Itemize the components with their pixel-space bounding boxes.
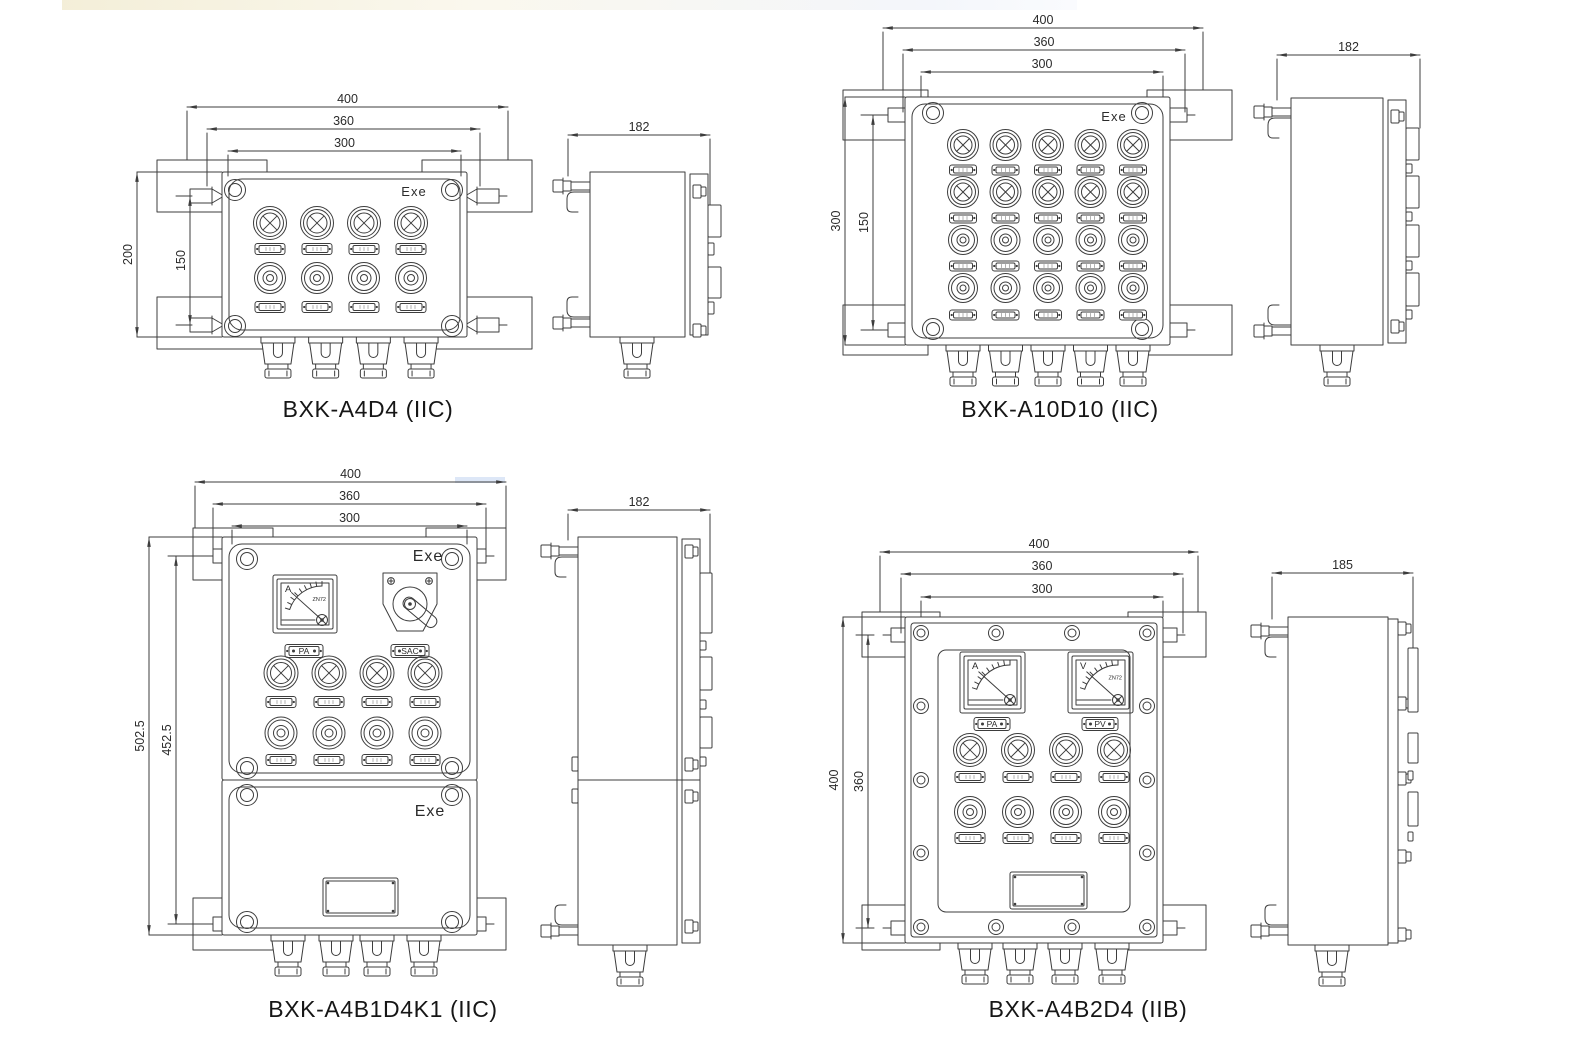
dim-label: 300 (1032, 57, 1053, 71)
dimension-horizontal: 360 (901, 559, 1183, 576)
dimension-horizontal: 185 (1272, 558, 1413, 575)
drawing-bxk-a10d10: Exe400360300300150182 (829, 13, 1420, 386)
dim-label: 150 (857, 212, 871, 233)
cable-gland (1031, 345, 1065, 386)
dim-label: 360 (1032, 559, 1053, 573)
label-plate (1077, 310, 1104, 320)
label-plate (396, 302, 426, 313)
datasheet-canvas: Exe400360300200150182Exe4003603003001501… (0, 0, 1593, 1050)
cable-gland (1315, 945, 1349, 986)
drawing-bxk-a4b1d4k1: ExeExeAZN72PASAC400360300502.5452.5182 (133, 467, 712, 986)
label-plate (1035, 213, 1062, 223)
dimension-horizontal: 182 (1277, 40, 1420, 57)
dim-label: V (1080, 661, 1087, 672)
drawing-title-bxk-a10d10: BXK-A10D10 (IIC) (961, 396, 1159, 423)
ammeter: AZN72 (273, 575, 337, 633)
side-view: 182 (541, 495, 712, 986)
legend-plate: PV (1082, 718, 1118, 731)
dim-label: 360 (1034, 35, 1055, 49)
label-plate (362, 755, 392, 766)
legend-plate: PA (285, 645, 323, 658)
mounting-bracket-side (553, 178, 590, 212)
cable-gland (1116, 345, 1150, 386)
drawing-bxk-a4b2d4: AVZN72PAPV400360300400360185 (827, 537, 1418, 986)
dimension-horizontal: 360 (903, 35, 1185, 52)
label-plate (950, 213, 977, 223)
label-plate (1003, 833, 1033, 844)
label-plate (992, 310, 1019, 320)
dim-label: 360 (852, 771, 866, 792)
label-plate (349, 302, 379, 313)
label-plate (349, 244, 379, 255)
dimension-horizontal: 400 (883, 13, 1203, 30)
mounting-bracket-side (1251, 905, 1288, 939)
mounting-bracket-side (541, 543, 578, 577)
label-plate (266, 755, 296, 766)
dimension-vertical: 400 (827, 617, 845, 943)
dim-label: A (285, 584, 292, 595)
mounting-bracket-side (553, 297, 590, 331)
cable-gland (620, 337, 654, 378)
label-plate (1035, 165, 1062, 175)
exe-marking: Exe (415, 803, 446, 820)
dim-label: 182 (1338, 40, 1359, 54)
dimension-horizontal: 182 (568, 120, 710, 137)
cable-gland (360, 935, 394, 976)
dim-label: 400 (340, 467, 361, 481)
dimension-horizontal: 300 (921, 57, 1163, 74)
label-plate (1077, 261, 1104, 271)
dim-label: A (972, 661, 979, 672)
label-plate (1099, 833, 1129, 844)
dim-label: 300 (339, 511, 360, 525)
label-plate (1120, 310, 1147, 320)
dim-label: 182 (629, 495, 650, 509)
label-plate (950, 165, 977, 175)
side-view: 182 (1254, 40, 1420, 386)
cover-bolt-side (693, 324, 706, 337)
mounting-bracket-side (541, 905, 578, 939)
side-view: 182 (553, 120, 721, 378)
label-plate (410, 697, 440, 708)
dimension-horizontal: 182 (568, 495, 710, 512)
label-plate (255, 302, 285, 313)
dimension-horizontal: 300 (921, 582, 1163, 599)
label-plate (410, 755, 440, 766)
exe-marking: Exe (401, 184, 426, 199)
cable-gland (1003, 943, 1037, 984)
cover-bolt-side (1391, 110, 1404, 123)
cable-gland (989, 345, 1023, 386)
dim-label: 185 (1332, 558, 1353, 572)
voltmeter: VZN72 (1068, 652, 1133, 713)
dim-label: 400 (337, 92, 358, 106)
label-plate (1077, 213, 1104, 223)
dim-label: 400 (1029, 537, 1050, 551)
dim-label: SAC (401, 646, 418, 656)
label-plate (1035, 310, 1062, 320)
front-view: AVZN72PAPV400360300400360 (827, 537, 1206, 984)
dim-label: 360 (333, 114, 354, 128)
label-plate (950, 310, 977, 320)
dimension-vertical: 200 (121, 172, 139, 337)
cover-bolt-side (685, 920, 698, 933)
dimension-vertical: 452.5 (160, 556, 178, 924)
cable-gland (1074, 345, 1108, 386)
legend-plate: SAC (391, 645, 429, 658)
dim-label: PV (1094, 719, 1106, 729)
dim-label: 360 (339, 489, 360, 503)
dim-label: 400 (1033, 13, 1054, 27)
dimension-horizontal: 360 (207, 114, 480, 131)
cable-gland (271, 935, 305, 976)
dimension-horizontal: 400 (195, 467, 506, 484)
technical-drawing: Exe400360300200150182Exe4003603003001501… (0, 0, 1593, 1050)
label-plate (1077, 165, 1104, 175)
label-plate (955, 833, 985, 844)
cover-bolt-side (1398, 928, 1411, 941)
cable-gland (319, 935, 353, 976)
exe-marking: Exe (1101, 109, 1126, 124)
front-view: Exe400360300200150 (121, 92, 532, 378)
dim-label: 300 (1032, 582, 1053, 596)
cover-bolt-side (1391, 320, 1404, 333)
cover-bolt-side (685, 790, 698, 803)
drawing-title-bxk-a4d4: BXK-A4D4 (IIC) (283, 396, 454, 423)
dimension-horizontal: 300 (228, 136, 461, 153)
dimension-horizontal: 360 (213, 489, 486, 506)
dim-label: 182 (629, 120, 650, 134)
side-view: 185 (1251, 558, 1418, 986)
label-plate (1003, 772, 1033, 783)
cover-bolt-side (693, 185, 706, 198)
cable-gland (309, 337, 343, 378)
cable-gland (407, 935, 441, 976)
dimension-horizontal: 400 (187, 92, 508, 109)
label-plate (302, 244, 332, 255)
front-view: Exe400360300300150 (829, 13, 1232, 386)
label-plate (1051, 833, 1081, 844)
drawing-bxk-a4d4: Exe400360300200150182 (121, 92, 721, 378)
cable-gland (613, 945, 647, 986)
mounting-bracket-side (1251, 623, 1288, 657)
cable-gland (356, 337, 390, 378)
legend-plate: PA (974, 718, 1010, 731)
cover-bolt-side (685, 545, 698, 558)
dim-label: PA (299, 646, 310, 656)
front-view: ExeExeAZN72PASAC400360300502.5452.5 (133, 467, 506, 976)
label-plate (955, 772, 985, 783)
cover-bolt-side (1398, 622, 1411, 635)
dim-label: 300 (829, 211, 843, 232)
cable-gland (946, 345, 980, 386)
label-plate (266, 697, 296, 708)
dim-label: ZN72 (1109, 676, 1122, 682)
label-plate (314, 697, 344, 708)
drawing-title-bxk-a4b2d4: BXK-A4B2D4 (IIB) (989, 996, 1188, 1023)
label-plate (362, 697, 392, 708)
cable-gland (404, 337, 438, 378)
dim-label: ZN72 (313, 597, 326, 603)
label-plate (992, 213, 1019, 223)
cover-bolt-side (685, 758, 698, 771)
mounting-bracket-side (1254, 104, 1291, 138)
label-plate (1120, 261, 1147, 271)
label-plate (255, 244, 285, 255)
dimension-horizontal: 300 (232, 511, 467, 528)
dim-label: 200 (121, 244, 135, 265)
cable-gland (958, 943, 992, 984)
label-plate (1099, 772, 1129, 783)
exe-marking: Exe (413, 548, 444, 565)
label-plate (992, 261, 1019, 271)
cable-gland (1048, 943, 1082, 984)
dimension-horizontal: 400 (880, 537, 1198, 554)
dim-label: 452.5 (160, 724, 174, 755)
dim-label: 150 (174, 250, 188, 271)
label-plate (1051, 772, 1081, 783)
dim-label: 400 (827, 770, 841, 791)
label-plate (396, 244, 426, 255)
label-plate (950, 261, 977, 271)
ammeter: A (960, 652, 1025, 713)
dim-label: PA (987, 719, 998, 729)
cable-gland (1095, 943, 1129, 984)
dimension-vertical: 150 (857, 115, 875, 330)
cable-gland (1320, 345, 1354, 386)
cover-bolt-side (1398, 850, 1411, 863)
cable-gland (261, 337, 295, 378)
dimension-vertical: 360 (852, 635, 870, 928)
dimension-vertical: 502.5 (133, 537, 151, 935)
label-plate (992, 165, 1019, 175)
label-plate (314, 755, 344, 766)
label-plate (302, 302, 332, 313)
label-plate (1120, 165, 1147, 175)
label-plate (1035, 261, 1062, 271)
dim-label: 502.5 (133, 720, 147, 751)
mounting-bracket-side (1254, 305, 1291, 339)
dim-label: 300 (334, 136, 355, 150)
label-plate (1120, 213, 1147, 223)
drawing-title-bxk-a4b1d4k1: BXK-A4B1D4K1 (IIC) (268, 996, 497, 1023)
